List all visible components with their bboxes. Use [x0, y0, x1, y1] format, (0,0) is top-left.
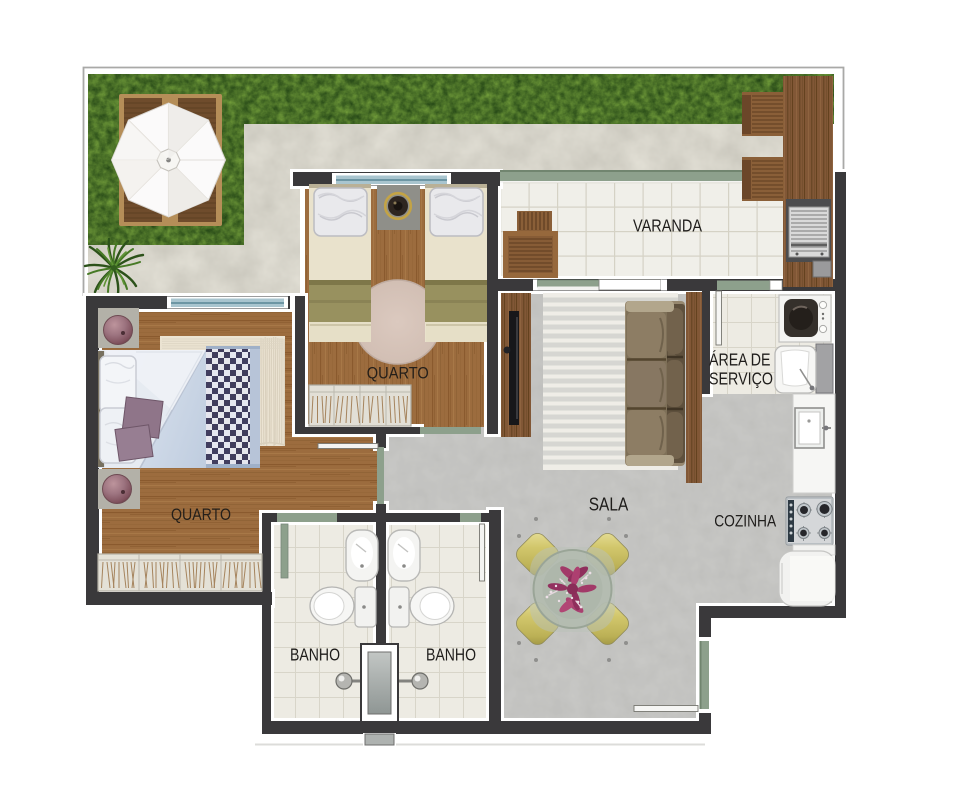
- svg-text:ÁREA DE: ÁREA DE: [709, 350, 771, 370]
- svg-text:BANHO: BANHO: [426, 645, 476, 665]
- svg-text:SERVIÇO: SERVIÇO: [709, 369, 773, 389]
- svg-text:VARANDA: VARANDA: [633, 216, 702, 236]
- svg-text:COZINHA: COZINHA: [714, 512, 777, 531]
- svg-text:QUARTO: QUARTO: [367, 363, 429, 382]
- svg-text:SALA: SALA: [589, 495, 629, 515]
- svg-text:BANHO: BANHO: [290, 645, 340, 665]
- svg-text:QUARTO: QUARTO: [171, 505, 231, 524]
